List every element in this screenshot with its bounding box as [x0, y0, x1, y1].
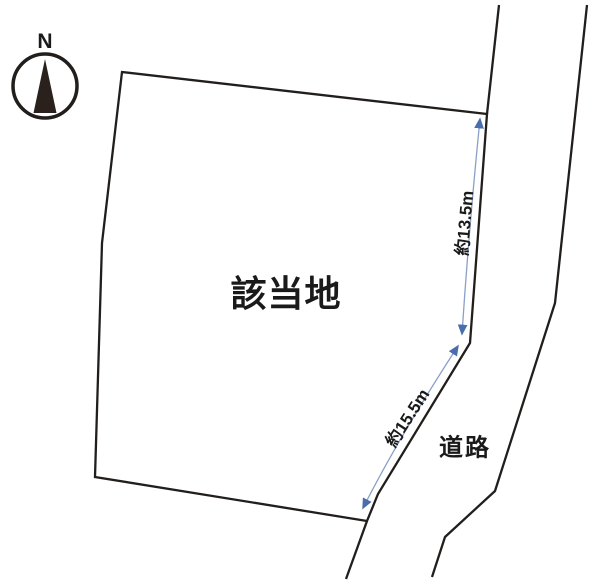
road-left-edge-upper	[487, 5, 499, 114]
compass-rose	[13, 54, 77, 118]
compass-north-label: N	[37, 30, 52, 54]
site-plan-canvas: N 該当地 道路 約13.5m 約15.5m	[0, 0, 600, 585]
road-left-edge-lower	[346, 521, 367, 579]
road-right-edge	[432, 5, 587, 577]
road-label: 道路	[439, 428, 491, 463]
compass-north-needle-icon	[34, 59, 57, 113]
subject-site-label: 該当地	[230, 265, 341, 317]
